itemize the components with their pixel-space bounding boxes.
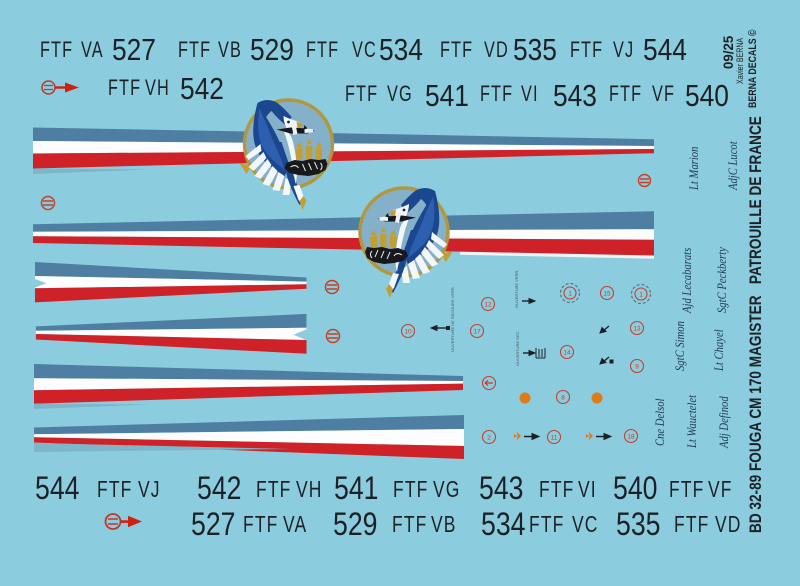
svg-text:1: 1: [639, 292, 643, 299]
svg-text:14: 14: [563, 350, 571, 357]
svg-text:17: 17: [473, 329, 481, 336]
svg-text:13: 13: [633, 326, 641, 333]
svg-text:11: 11: [551, 435, 558, 442]
svg-text:12: 12: [484, 302, 492, 309]
svg-text:8: 8: [561, 395, 565, 402]
svg-text:9: 9: [635, 364, 639, 371]
svg-text:18: 18: [627, 434, 635, 441]
svg-text:2: 2: [487, 435, 491, 442]
svg-text:15: 15: [603, 291, 611, 298]
svg-text:10: 10: [404, 329, 412, 336]
svg-text:1: 1: [568, 291, 572, 298]
